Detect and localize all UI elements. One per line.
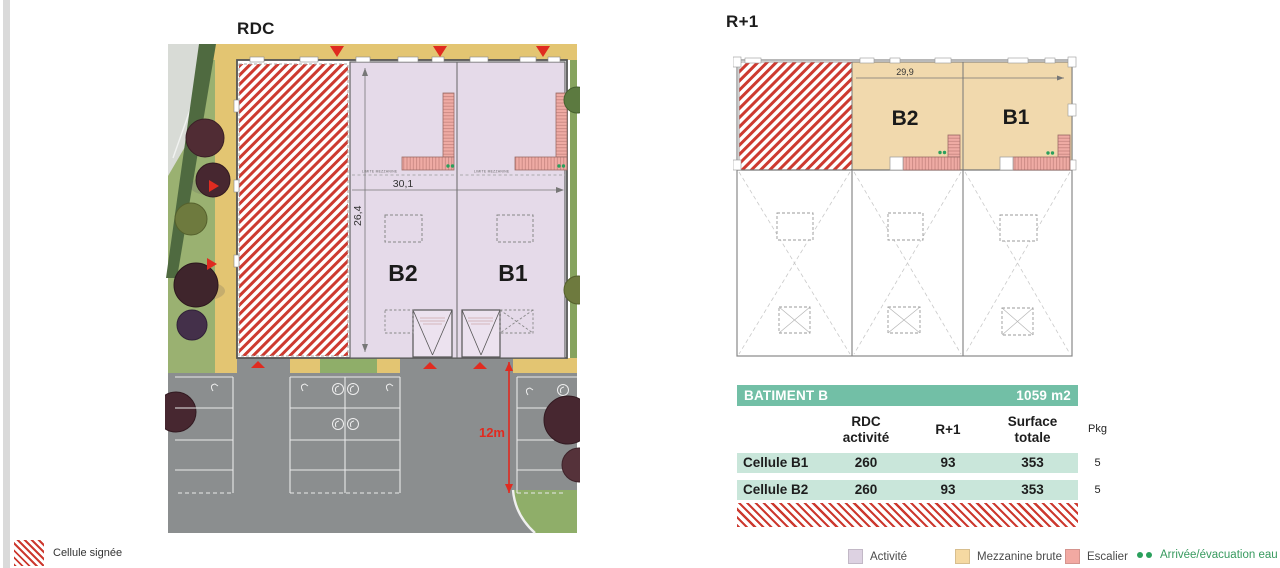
r1-plan-title: R+1: [726, 12, 759, 32]
rdc-building: LIMITE MEZZANINE LIMITE MEZZANINE 30,1 2…: [234, 57, 567, 358]
r1-floor-plan: 29,9 B2 B1: [733, 55, 1078, 365]
mezzanine-swatch: [955, 549, 970, 564]
activite-label: Activité: [870, 551, 907, 563]
table-row: Cellule B2 260 93 353 5: [737, 480, 1117, 500]
table-column-headers: RDC activité R+1 Surface totale Pkg: [737, 406, 1117, 453]
col-header-pkg: Pkg: [1078, 423, 1117, 435]
row-total-value: 353: [987, 455, 1078, 470]
svg-text:26,4: 26,4: [352, 205, 364, 226]
row-pkg-value: 5: [1078, 457, 1117, 469]
mezzanine-limit-label: LIMITE MEZZANINE: [474, 170, 510, 174]
col-header-rdc: RDC activité: [823, 414, 909, 444]
legend-activite: Activité: [848, 549, 907, 564]
rdc-cell-label-b2: B2: [388, 260, 417, 286]
page-left-strip: [3, 0, 10, 568]
table-header: BATIMENT B 1059 m2: [737, 385, 1078, 406]
row-rdc-value: 260: [823, 455, 909, 470]
tree: [196, 163, 230, 197]
rdc-plan-title: RDC: [237, 19, 275, 39]
batiment-b-table: BATIMENT B 1059 m2 RDC activité R+1 Surf…: [737, 385, 1117, 527]
r1-cell-label-b1: B1: [1003, 106, 1030, 129]
table-title: BATIMENT B: [744, 388, 828, 403]
tree: [175, 203, 207, 235]
tree: [174, 263, 218, 307]
signed-cells-hatch-bar: [737, 503, 1078, 527]
r1-plan: 29,9 B2 B1: [733, 57, 1076, 356]
water-dots-icon: [1137, 552, 1152, 558]
row-name: Cellule B2: [737, 482, 823, 497]
row-pkg-value: 5: [1078, 484, 1117, 496]
col-header-total: Surface totale: [987, 414, 1078, 444]
activite-swatch: [848, 549, 863, 564]
tree: [186, 119, 224, 157]
cellule-signee-label: Cellule signée: [53, 547, 122, 559]
legend-escalier: Escalier: [1065, 549, 1128, 564]
table-row: Cellule B1 260 93 353 5: [737, 453, 1117, 473]
cellule-signee-swatch: [14, 540, 44, 566]
row-r1-value: 93: [909, 482, 987, 497]
tree: [177, 310, 207, 340]
row-total-value: 353: [987, 482, 1078, 497]
col-header-r1: R+1: [909, 422, 987, 437]
cellule-signee-area-r1: [739, 62, 852, 170]
legend-mezzanine: Mezzanine brute: [955, 549, 1062, 564]
eau-label: Arrivée/évacuation eau: [1160, 549, 1278, 561]
mezzanine-limit-label: LIMITE MEZZANINE: [362, 170, 398, 174]
path-west: [215, 60, 237, 373]
svg-text:29,9: 29,9: [896, 67, 914, 77]
sectional-door-b1: [462, 310, 500, 357]
cellule-signee-area: [239, 64, 348, 356]
escalier-swatch: [1065, 549, 1080, 564]
aisle-gap: [237, 358, 290, 374]
row-r1-value: 93: [909, 455, 987, 470]
sectional-door-b2: [413, 310, 452, 357]
r1-cell-label-b2: B2: [892, 107, 919, 130]
rdc-cell-label-b1: B1: [498, 260, 528, 286]
aisle-gap: [400, 358, 513, 374]
row-name: Cellule B1: [737, 455, 823, 470]
legend-eau: Arrivée/évacuation eau: [1137, 549, 1278, 561]
path-seg: [290, 358, 320, 374]
svg-text:30,1: 30,1: [393, 178, 414, 190]
legend-cellule-signee: Cellule signée: [14, 540, 122, 566]
svg-text:12m: 12m: [479, 425, 505, 440]
path-seg: [513, 358, 577, 374]
row-rdc-value: 260: [823, 482, 909, 497]
path-top: [168, 44, 577, 60]
table-total-area: 1059 m2: [1016, 388, 1071, 403]
escalier-label: Escalier: [1087, 551, 1128, 563]
mezzanine-label: Mezzanine brute: [977, 551, 1062, 563]
grass-seg: [320, 358, 377, 374]
path-seg: [377, 358, 400, 374]
rdc-floor-plan: LIMITE MEZZANINE LIMITE MEZZANINE 30,1 2…: [165, 40, 580, 540]
